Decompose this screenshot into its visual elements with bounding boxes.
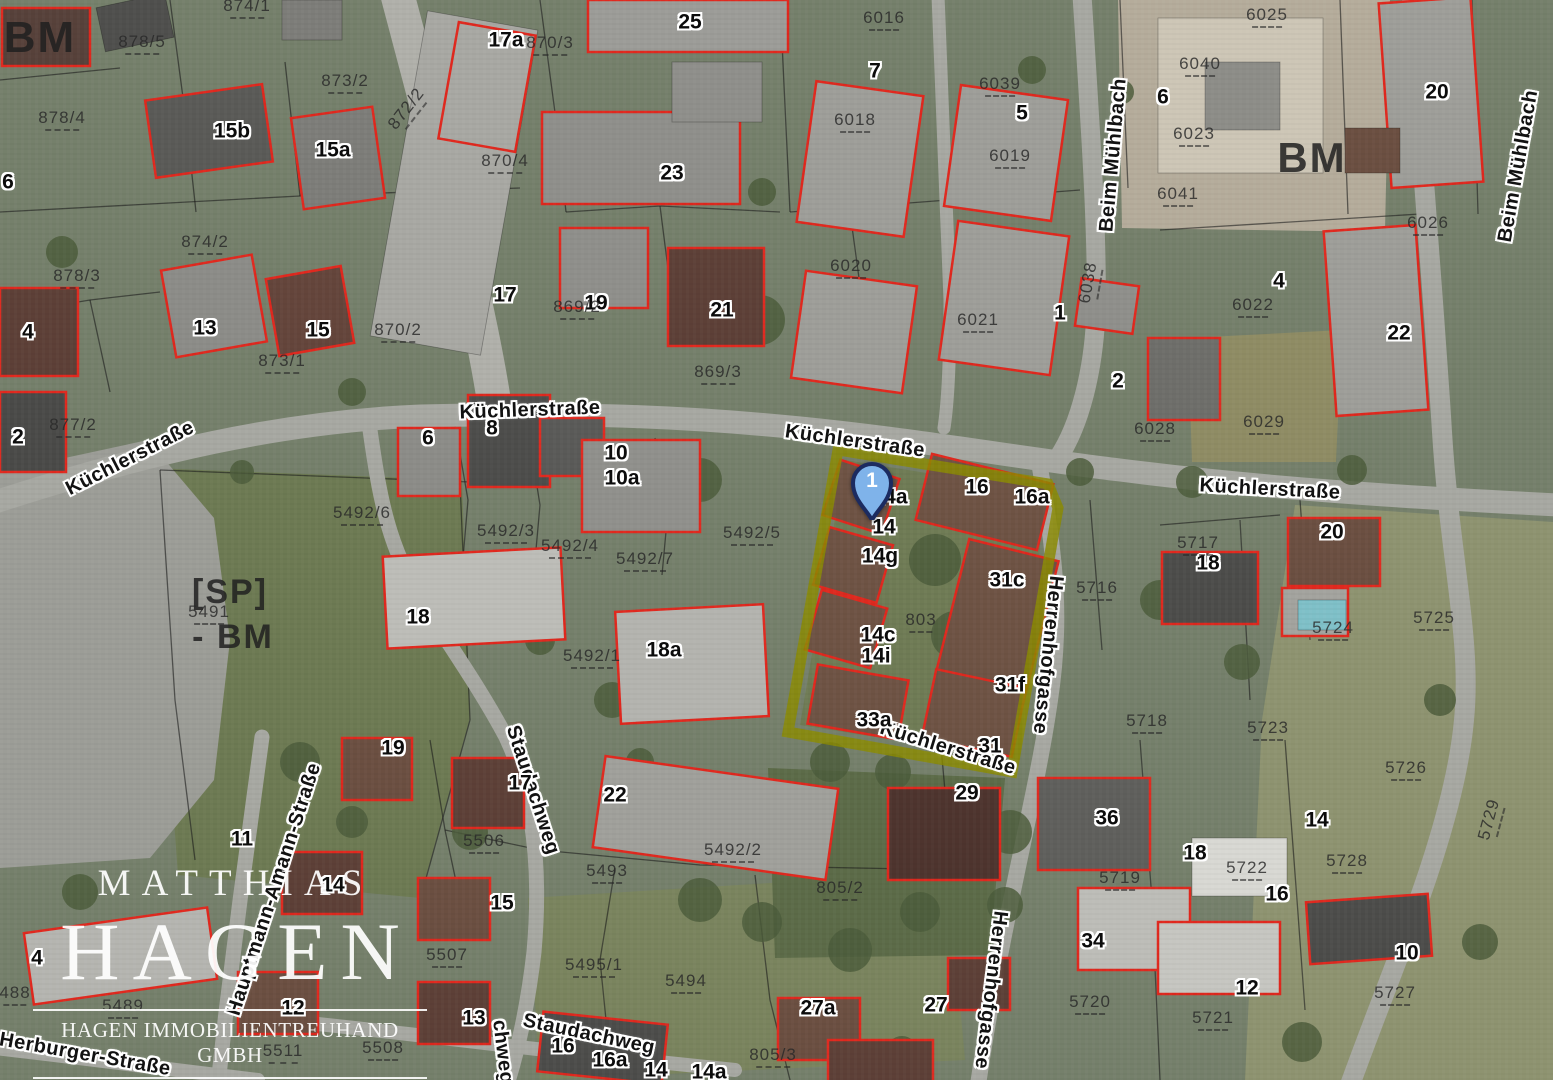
map-pin[interactable]: 1 [850, 462, 894, 520]
pin-number: 1 [850, 469, 894, 493]
aerial-map-view: KüchlerstraßeKüchlerstraßeKüchlerstraßeK… [0, 0, 1553, 1080]
aerial-basemap [0, 0, 1553, 1080]
